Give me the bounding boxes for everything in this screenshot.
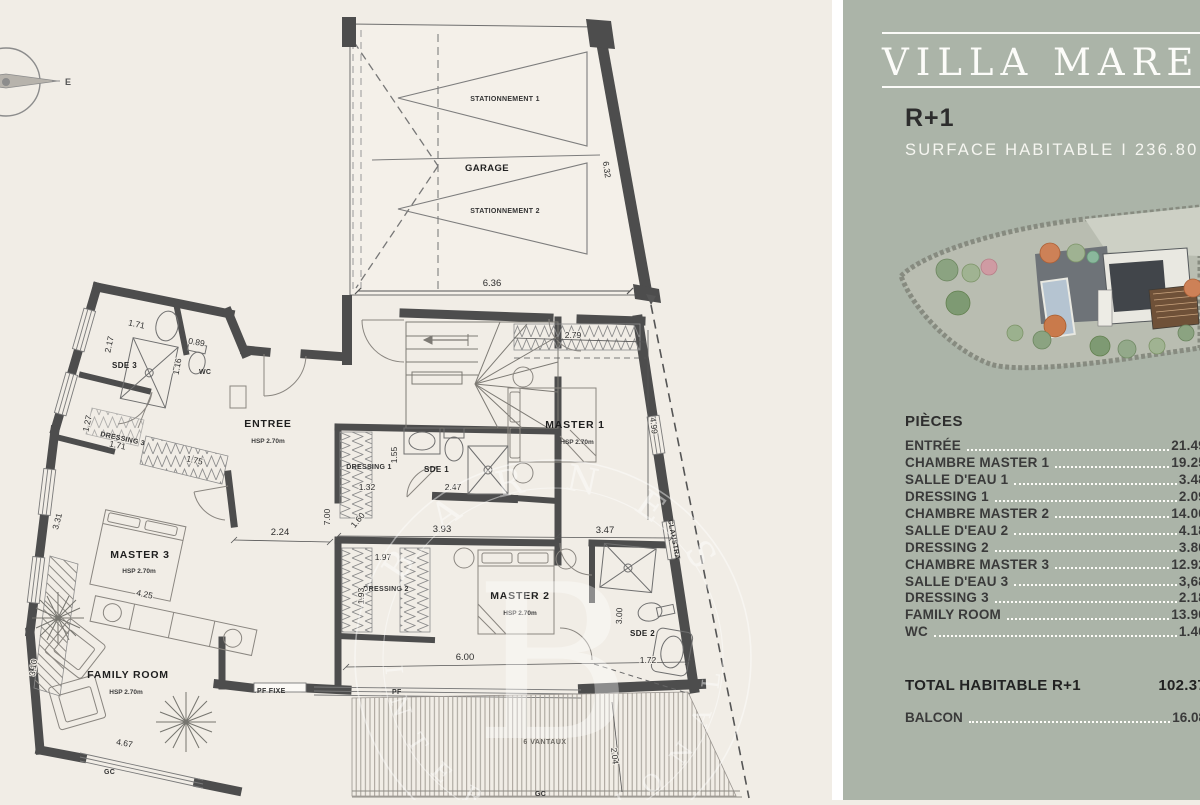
dotted-leader bbox=[969, 721, 1170, 723]
list-item: DRESSING 23.80 bbox=[905, 537, 1200, 554]
balcon-row: BALCON 16.08 bbox=[905, 710, 1200, 725]
total-label: TOTAL HABITABLE R+1 bbox=[905, 677, 1081, 694]
master3-hsp: HSP 2.70m bbox=[122, 568, 156, 575]
compass-icon: E bbox=[0, 48, 71, 116]
entree-label: ENTREE bbox=[244, 418, 291, 430]
list-item: CHAMBRE MASTER 119.25 bbox=[905, 453, 1200, 470]
garage-label: GARAGE bbox=[465, 163, 509, 174]
room-value: 13.90 bbox=[1171, 608, 1200, 622]
room-label: WC bbox=[905, 625, 928, 639]
master1-label: MASTER 1 bbox=[545, 419, 605, 431]
title-rule-top bbox=[882, 32, 1200, 34]
dim-2-79: 2.79 bbox=[565, 330, 582, 340]
pf-fixe-label: PF FIXE bbox=[257, 688, 286, 695]
total-habitable-row: TOTAL HABITABLE R+1 102.37 bbox=[905, 677, 1200, 694]
list-item: SALLE D'EAU 33,68 bbox=[905, 571, 1200, 588]
sde1-label: SDE 1 bbox=[424, 465, 449, 474]
watermark-letter: B bbox=[474, 538, 632, 789]
floor-plan-drawing: STATIONNEMENT 1 GARAGE STATIONNEMENT 2 6… bbox=[0, 0, 832, 800]
stationnement1-label: STATIONNEMENT 1 bbox=[470, 96, 540, 103]
room-label: DRESSING 3 bbox=[905, 591, 989, 605]
floor-plan: STATIONNEMENT 1 GARAGE STATIONNEMENT 2 6… bbox=[0, 0, 832, 800]
room-label: CHAMBRE MASTER 3 bbox=[905, 558, 1049, 572]
list-item: CHAMBRE MASTER 312.92 bbox=[905, 554, 1200, 571]
sde3-label: SDE 3 bbox=[112, 361, 137, 370]
room-value: 1.40 bbox=[1179, 625, 1200, 639]
room-label: CHAMBRE MASTER 1 bbox=[905, 456, 1049, 470]
dotted-leader bbox=[1014, 533, 1177, 535]
dotted-leader bbox=[967, 449, 1169, 451]
room-label: SALLE D'EAU 1 bbox=[905, 473, 1008, 487]
list-item: DRESSING 12.09 bbox=[905, 487, 1200, 504]
site-plan-thumbnail bbox=[895, 196, 1200, 392]
room-value: 2.18 bbox=[1179, 591, 1200, 605]
room-label: DRESSING 2 bbox=[905, 541, 989, 555]
dim-2-17: 2.17 bbox=[102, 335, 115, 354]
gc-label-2: GC bbox=[535, 791, 546, 798]
room-label: SALLE D'EAU 2 bbox=[905, 524, 1008, 538]
dim-1-55: 1.55 bbox=[389, 446, 399, 463]
balcon-label: BALCON bbox=[905, 710, 963, 725]
wc-label: WC bbox=[199, 369, 211, 376]
dim-4-99: 4.99 bbox=[648, 417, 660, 435]
master1-hsp: HSP 2.70m bbox=[560, 439, 594, 446]
garage-width-dim: 6.36 bbox=[483, 278, 502, 289]
dotted-leader bbox=[1014, 483, 1177, 485]
dim-1-72: 1.72 bbox=[640, 655, 657, 665]
room-label: CHAMBRE MASTER 2 bbox=[905, 507, 1049, 521]
dim-4-67: 4.67 bbox=[116, 737, 134, 750]
list-item: SALLE D'EAU 13.48 bbox=[905, 470, 1200, 487]
room-value: 19.25 bbox=[1171, 456, 1200, 470]
room-label: FAMILY ROOM bbox=[905, 608, 1001, 622]
dotted-leader bbox=[934, 635, 1177, 637]
site-terrace-white bbox=[1098, 290, 1112, 326]
rooms-list: ENTRÉE21.49 CHAMBRE MASTER 119.25 SALLE … bbox=[905, 436, 1200, 639]
family-room-hsp: HSP 2.70m bbox=[109, 689, 143, 696]
dim-0-89: 0.89 bbox=[188, 336, 206, 349]
dim-1-32: 1.32 bbox=[359, 482, 376, 492]
villa-title: VILLA MARENA bbox=[882, 41, 1200, 84]
dotted-leader bbox=[1055, 516, 1169, 518]
dim-7-00: 7.00 bbox=[322, 508, 332, 525]
room-label: ENTRÉE bbox=[905, 439, 961, 453]
panel-divider bbox=[832, 0, 843, 800]
balcon-value: 16.08 bbox=[1172, 710, 1200, 725]
room-value: 3,68 bbox=[1179, 575, 1200, 589]
dim-4-25: 4.25 bbox=[135, 587, 154, 600]
room-label: SALLE D'EAU 3 bbox=[905, 575, 1008, 589]
room-label: DRESSING 1 bbox=[905, 490, 989, 504]
dotted-leader bbox=[995, 601, 1177, 603]
dotted-leader bbox=[1014, 584, 1177, 586]
dim-6-00: 6.00 bbox=[456, 652, 475, 663]
dotted-leader bbox=[995, 550, 1177, 552]
entree-hsp: HSP 2.70m bbox=[251, 438, 285, 445]
dim-2-24: 2.24 bbox=[271, 527, 290, 538]
family-room-label: FAMILY ROOM bbox=[87, 669, 169, 681]
dim-1-16: 1.16 bbox=[171, 357, 184, 375]
dim-1-71a: 1.71 bbox=[127, 317, 146, 330]
dim-3-31: 3.31 bbox=[50, 512, 64, 531]
dotted-leader bbox=[1007, 618, 1169, 620]
stationnement2-label: STATIONNEMENT 2 bbox=[470, 208, 540, 215]
room-value: 12.92 bbox=[1171, 558, 1200, 572]
pieces-header: PIÈCES bbox=[905, 413, 963, 430]
list-item: WC1.40 bbox=[905, 622, 1200, 639]
title-rule-bottom bbox=[882, 86, 1200, 88]
info-panel: VILLA MARENA R+1 SURFACE HABITABLE I 236… bbox=[843, 0, 1200, 800]
list-item: ENTRÉE21.49 bbox=[905, 436, 1200, 453]
sde2-label: SDE 2 bbox=[630, 629, 655, 638]
floor-level: R+1 bbox=[905, 104, 955, 133]
list-item: SALLE D'EAU 24.18 bbox=[905, 520, 1200, 537]
room-value: 4.18 bbox=[1179, 524, 1200, 538]
room-value: 21.49 bbox=[1171, 439, 1200, 453]
total-value: 102.37 bbox=[1158, 677, 1200, 694]
dressing1-label: DRESSING 1 bbox=[346, 464, 391, 471]
room-value: 3.48 bbox=[1179, 473, 1200, 487]
dotted-leader bbox=[995, 500, 1177, 502]
list-item: FAMILY ROOM13.90 bbox=[905, 605, 1200, 622]
list-item: DRESSING 32.18 bbox=[905, 588, 1200, 605]
room-value: 3.80 bbox=[1179, 541, 1200, 555]
list-item: CHAMBRE MASTER 214.00 bbox=[905, 504, 1200, 521]
master3-label: MASTER 3 bbox=[110, 549, 170, 561]
room-value: 2.09 bbox=[1179, 490, 1200, 504]
dressing2-label: DRESSING 2 bbox=[363, 586, 408, 593]
dotted-leader bbox=[1055, 567, 1169, 569]
dotted-leader bbox=[1055, 466, 1169, 468]
surface-habitable: SURFACE HABITABLE I 236.80 M bbox=[905, 141, 1200, 160]
garage-block: STATIONNEMENT 1 GARAGE STATIONNEMENT 2 6… bbox=[342, 17, 661, 303]
room-value: 14.00 bbox=[1171, 507, 1200, 521]
gc-label-1: GC bbox=[104, 769, 115, 776]
compass-east-label: E bbox=[65, 77, 71, 87]
dim-3-47: 3.47 bbox=[596, 525, 615, 536]
